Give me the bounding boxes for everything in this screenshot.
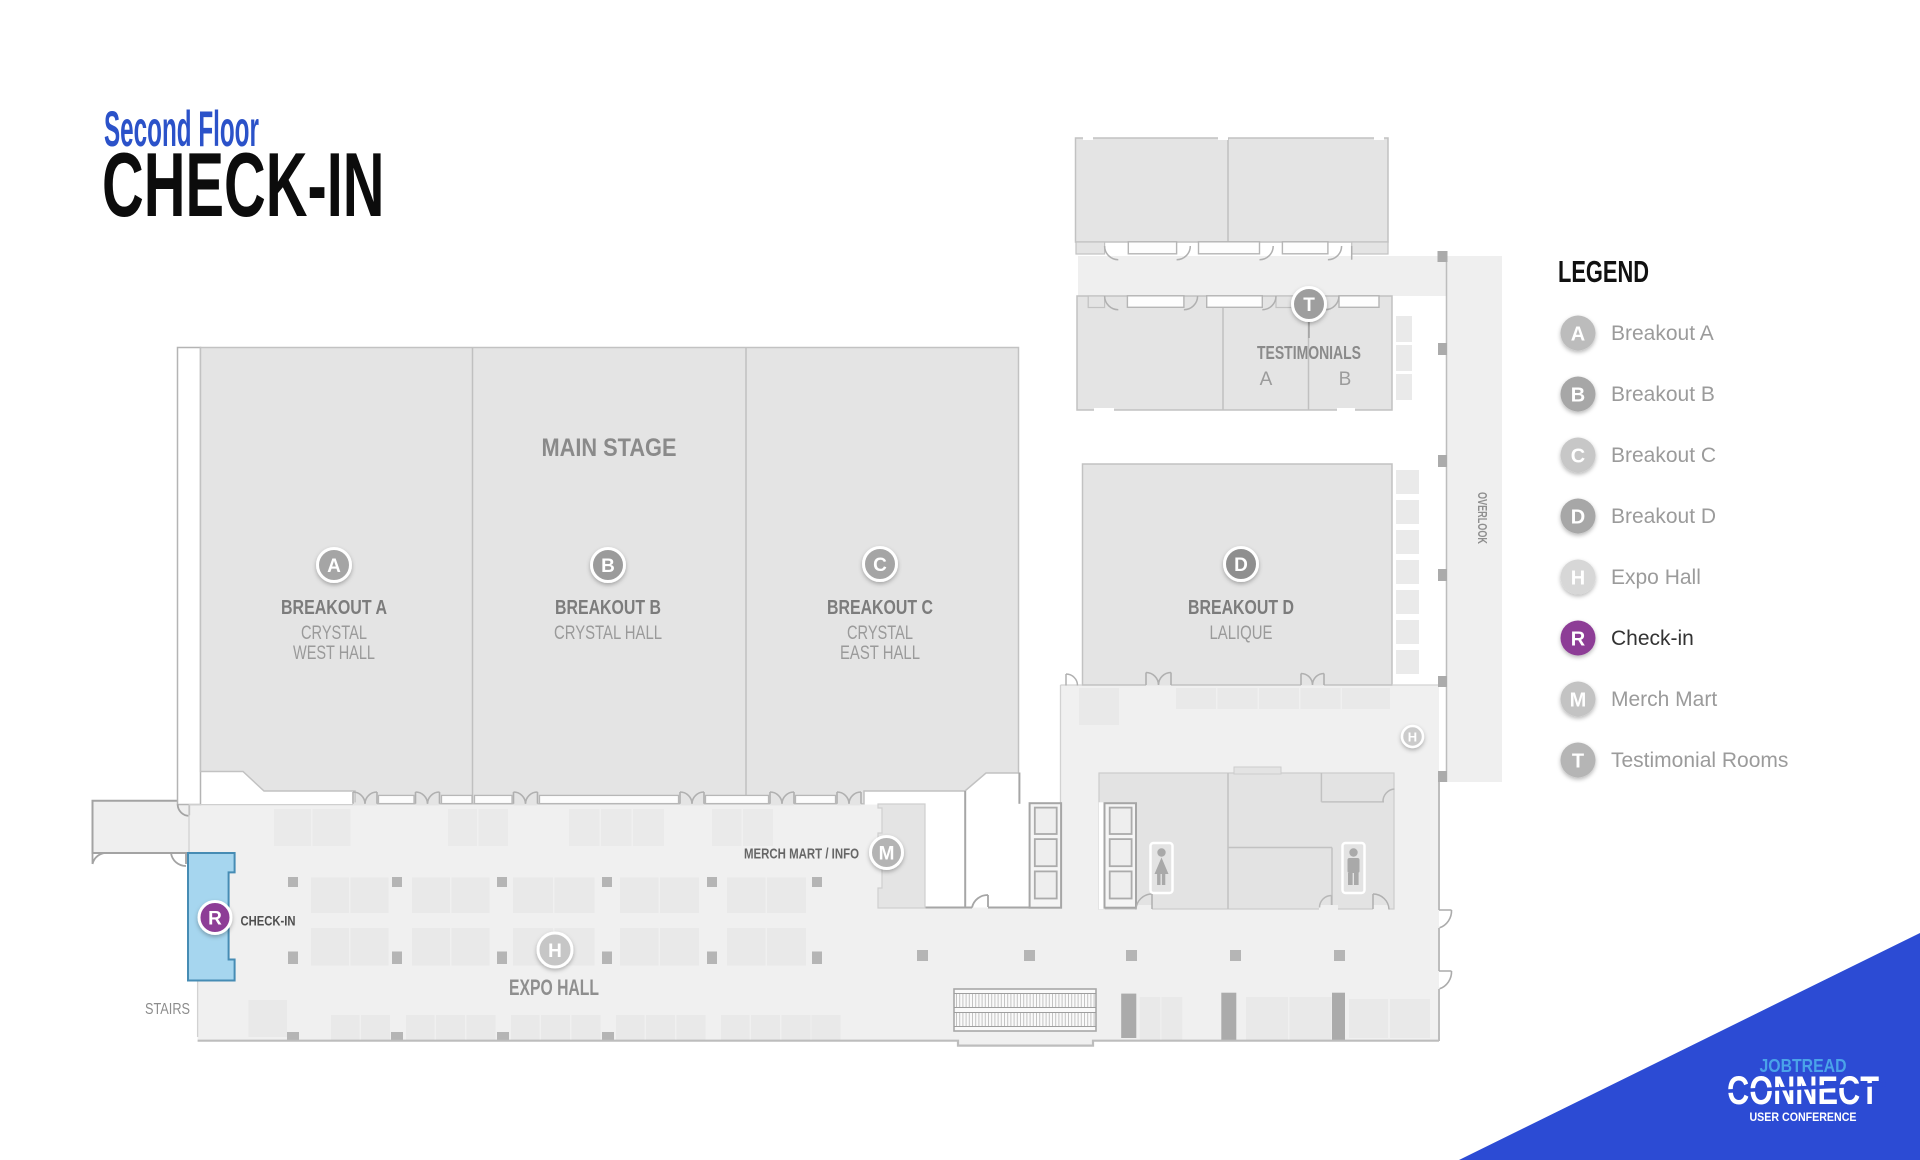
svg-text:MAIN STAGE: MAIN STAGE: [542, 434, 677, 462]
svg-text:BREAKOUT D: BREAKOUT D: [1188, 597, 1294, 619]
svg-text:BREAKOUT B: BREAKOUT B: [555, 597, 661, 619]
svg-text:M: M: [879, 844, 895, 865]
svg-text:CRYSTAL: CRYSTAL: [847, 623, 913, 644]
svg-text:C: C: [1571, 446, 1585, 468]
svg-text:B: B: [1339, 369, 1352, 390]
svg-text:T: T: [1303, 295, 1315, 316]
svg-text:H: H: [1571, 568, 1585, 590]
svg-text:CRYSTAL: CRYSTAL: [301, 623, 367, 644]
svg-text:R: R: [208, 909, 222, 930]
svg-text:Merch Mart: Merch Mart: [1611, 688, 1717, 711]
svg-text:EAST HALL: EAST HALL: [840, 643, 920, 664]
svg-text:A: A: [1571, 324, 1585, 346]
svg-text:WEST HALL: WEST HALL: [293, 643, 375, 664]
svg-text:B: B: [1571, 385, 1585, 407]
svg-text:LALIQUE: LALIQUE: [1210, 623, 1273, 644]
svg-text:M: M: [1570, 690, 1587, 712]
svg-text:BREAKOUT A: BREAKOUT A: [281, 597, 387, 619]
svg-text:D: D: [1234, 555, 1248, 576]
svg-text:B: B: [601, 556, 615, 577]
svg-text:C: C: [873, 555, 887, 576]
svg-text:Breakout D: Breakout D: [1611, 505, 1716, 528]
svg-text:A: A: [327, 556, 341, 577]
svg-text:TESTIMONIALS: TESTIMONIALS: [1257, 343, 1361, 363]
svg-text:EXPO HALL: EXPO HALL: [509, 975, 599, 1000]
svg-text:STAIRS: STAIRS: [145, 1001, 190, 1018]
svg-text:Check-in: Check-in: [1611, 627, 1694, 650]
svg-text:Breakout B: Breakout B: [1611, 383, 1715, 406]
svg-text:T: T: [1572, 751, 1584, 773]
svg-text:A: A: [1260, 369, 1273, 390]
svg-text:CRYSTAL HALL: CRYSTAL HALL: [554, 623, 662, 644]
svg-text:D: D: [1571, 507, 1585, 529]
svg-text:OVERLOOK: OVERLOOK: [1475, 492, 1490, 544]
svg-text:LEGEND: LEGEND: [1558, 254, 1649, 289]
svg-text:H: H: [548, 941, 562, 962]
svg-text:Testimonial Rooms: Testimonial Rooms: [1611, 749, 1788, 772]
svg-text:R: R: [1571, 629, 1586, 651]
svg-text:Breakout C: Breakout C: [1611, 444, 1716, 467]
svg-text:Expo Hall: Expo Hall: [1611, 566, 1701, 589]
svg-text:H: H: [1408, 730, 1417, 745]
svg-text:Breakout A: Breakout A: [1611, 322, 1714, 345]
svg-text:USER CONFERENCE: USER CONFERENCE: [1750, 1110, 1857, 1124]
svg-text:BREAKOUT C: BREAKOUT C: [827, 597, 933, 619]
svg-text:MERCH MART / INFO: MERCH MART / INFO: [744, 846, 859, 863]
svg-text:CHECK-IN: CHECK-IN: [241, 913, 296, 929]
